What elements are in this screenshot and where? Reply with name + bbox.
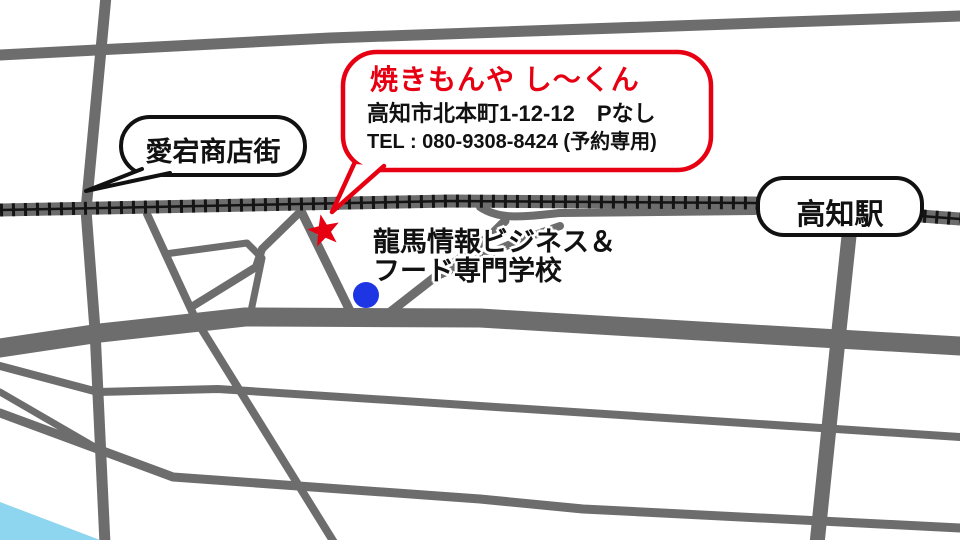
shop-phone: TEL : 080-9308-8424 (予約専用): [367, 125, 657, 154]
school-label-line2: フード専門学校: [373, 257, 616, 286]
road: [86, 0, 106, 540]
road: [817, 236, 849, 540]
river: [0, 502, 100, 540]
road: [0, 366, 960, 437]
road: [0, 16, 960, 55]
shopping-street-label: 愛宕商店街: [121, 130, 305, 169]
school-label-line1: 龍馬情報ビジネス＆: [373, 228, 616, 257]
atago-bubble-tail: [86, 169, 170, 191]
shop-name-title: 焼きもんや し〜くん: [370, 58, 640, 98]
road: [147, 214, 335, 540]
station-label: 高知駅: [758, 191, 922, 233]
map-canvas: 愛宕商店街 高知駅 焼きもんや し〜くん 高知市北本町1-12-12 Pなし T…: [0, 0, 960, 540]
road: [0, 317, 960, 348]
shop-address: 高知市北本町1-12-12 Pなし: [367, 96, 656, 128]
road: [193, 211, 301, 306]
school-label: 龍馬情報ビジネス＆ フード専門学校: [373, 228, 616, 286]
